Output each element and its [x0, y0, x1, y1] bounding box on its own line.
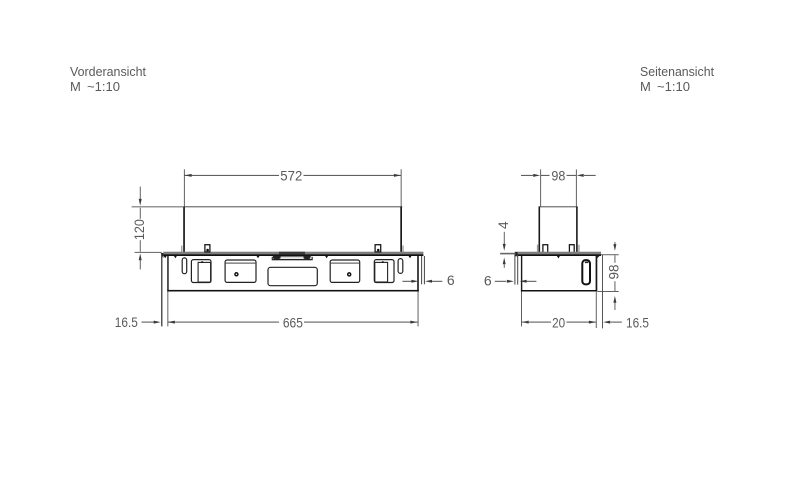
svg-text:665: 665: [283, 314, 303, 330]
svg-text:16.5: 16.5: [115, 314, 138, 330]
svg-text:98: 98: [606, 264, 622, 279]
svg-text:Seitenansicht: Seitenansicht: [640, 64, 714, 79]
svg-text:M: M: [640, 79, 651, 94]
svg-text:4: 4: [495, 221, 511, 229]
svg-text:6: 6: [447, 272, 455, 288]
svg-text:120: 120: [131, 219, 147, 240]
svg-text:572: 572: [280, 168, 302, 184]
svg-text:~1:10: ~1:10: [87, 79, 120, 94]
svg-text:20: 20: [552, 314, 565, 330]
svg-text:98: 98: [551, 168, 565, 184]
svg-text:16.5: 16.5: [626, 314, 649, 330]
svg-text:~1:10: ~1:10: [657, 79, 690, 94]
svg-text:6: 6: [484, 273, 492, 289]
svg-text:M: M: [70, 79, 81, 94]
svg-text:Vorderansicht: Vorderansicht: [70, 64, 146, 79]
